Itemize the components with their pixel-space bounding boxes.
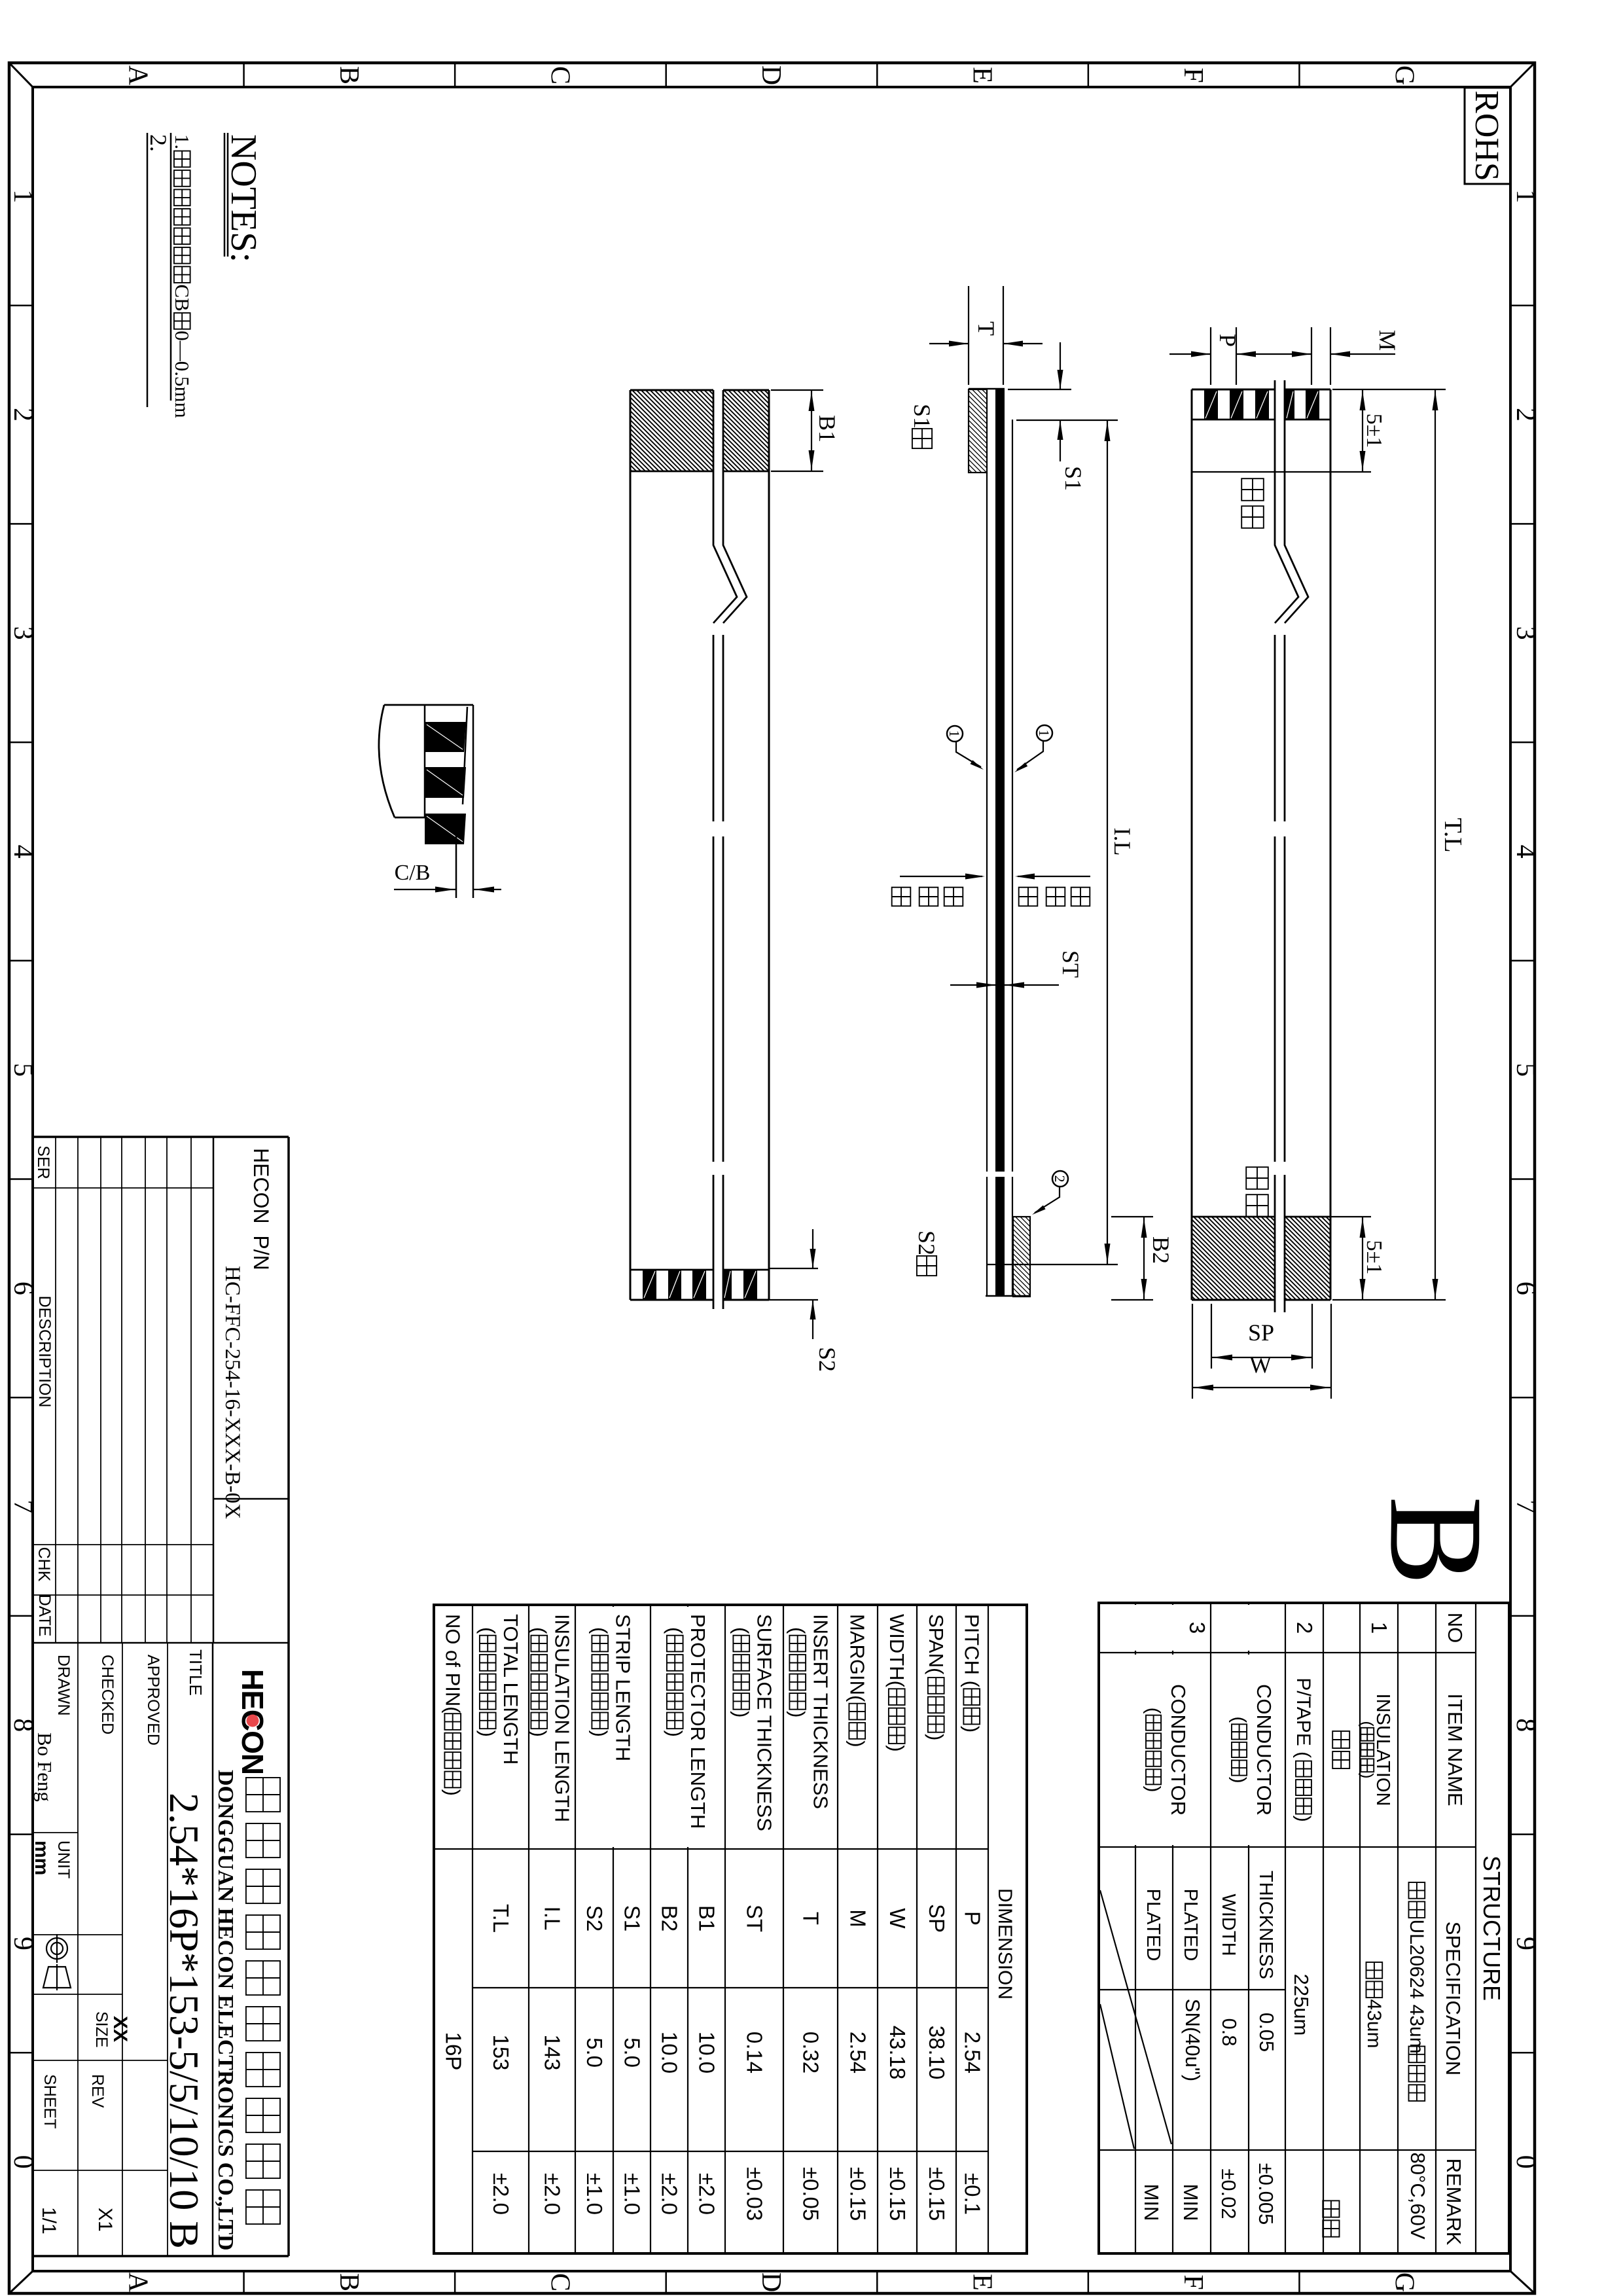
- svg-text:±0.005: ±0.005: [1255, 2163, 1277, 2225]
- svg-text:SP: SP: [1248, 1319, 1274, 1346]
- svg-text:B: B: [334, 66, 364, 84]
- svg-text:T: T: [973, 321, 999, 336]
- svg-text:G: G: [1389, 2272, 1419, 2292]
- svg-text:S2: S2: [814, 1347, 840, 1372]
- svg-text:(: (: [730, 1627, 753, 1634]
- svg-text:±0.05: ±0.05: [799, 2167, 823, 2221]
- svg-text:): ): [1143, 1786, 1164, 1793]
- svg-text:F: F: [1178, 2274, 1208, 2289]
- svg-text:TOTAL LENGTH: TOTAL LENGTH: [499, 1614, 522, 1765]
- svg-text:): ): [528, 1731, 551, 1737]
- svg-text:6: 6: [8, 1282, 38, 1295]
- svg-text:B: B: [334, 2273, 364, 2291]
- svg-text:S2: S2: [582, 1905, 607, 1931]
- svg-text:2: 2: [1293, 1622, 1317, 1634]
- svg-text:DIMENSION: DIMENSION: [994, 1888, 1016, 2000]
- svg-text:CB: CB: [171, 284, 194, 311]
- svg-text:M: M: [1374, 330, 1400, 351]
- svg-text:±0.02: ±0.02: [1217, 2168, 1240, 2219]
- svg-text:±0.15: ±0.15: [925, 2167, 949, 2221]
- svg-text:): ): [1228, 1777, 1249, 1784]
- svg-text:ST: ST: [1058, 950, 1084, 978]
- svg-text:43um: 43um: [1363, 1999, 1385, 2048]
- svg-text:(: (: [1358, 1721, 1376, 1727]
- svg-text:(: (: [476, 1627, 499, 1634]
- svg-text:ROHS: ROHS: [1468, 90, 1505, 181]
- svg-text:153: 153: [489, 2034, 513, 2070]
- svg-text:T.L: T.L: [489, 1904, 513, 1933]
- svg-text:2: 2: [8, 408, 38, 422]
- svg-text:SURFACE THICKNESS: SURFACE THICKNESS: [753, 1614, 776, 1831]
- svg-text:5.0: 5.0: [620, 2037, 645, 2068]
- svg-text:SER: SER: [34, 1145, 52, 1179]
- svg-text:INSERT THICKNESS: INSERT THICKNESS: [810, 1614, 832, 1809]
- svg-text:±0.1: ±0.1: [961, 2173, 985, 2215]
- svg-text:5±1: 5±1: [1362, 1240, 1386, 1275]
- svg-text:7: 7: [8, 1500, 38, 1514]
- svg-text:SPAN(: SPAN(: [925, 1614, 948, 1675]
- svg-text:SN(40u"): SN(40u"): [1181, 1999, 1204, 2081]
- svg-text:STRUCTURE: STRUCTURE: [1478, 1856, 1505, 2001]
- svg-text:REV: REV: [88, 2074, 107, 2108]
- svg-text:W: W: [1249, 1352, 1272, 1378]
- svg-text:XX: XX: [109, 2016, 131, 2042]
- svg-text:E: E: [967, 67, 997, 84]
- svg-text:(: (: [589, 1627, 612, 1634]
- svg-text:4: 4: [1510, 844, 1541, 858]
- svg-text:B1: B1: [695, 1905, 719, 1931]
- svg-text:): ): [1358, 1773, 1376, 1778]
- svg-text:4: 4: [8, 844, 38, 858]
- svg-text:0.32: 0.32: [799, 2032, 823, 2073]
- svg-text:0—0.5mm: 0—0.5mm: [171, 331, 194, 418]
- svg-text:1: 1: [1367, 1622, 1391, 1634]
- svg-text:E: E: [967, 2274, 997, 2291]
- svg-text:I.L: I.L: [1109, 828, 1135, 856]
- svg-text:Bo Feng: Bo Feng: [33, 1732, 56, 1802]
- svg-text:6: 6: [1510, 1282, 1541, 1295]
- svg-text:±2.0: ±2.0: [695, 2173, 719, 2215]
- svg-text:0: 0: [1510, 2155, 1541, 2169]
- svg-text:P: P: [1215, 334, 1241, 347]
- svg-text:): ): [730, 1711, 753, 1717]
- svg-text:0.14: 0.14: [743, 2032, 767, 2073]
- svg-text:7: 7: [1510, 1500, 1541, 1514]
- svg-text:3: 3: [1510, 626, 1541, 640]
- svg-text:): ): [885, 1745, 908, 1751]
- svg-text:SP: SP: [925, 1904, 949, 1933]
- svg-text:43.18: 43.18: [885, 2026, 910, 2080]
- svg-text:B2: B2: [1148, 1236, 1174, 1264]
- svg-text:PLATED: PLATED: [1180, 1889, 1201, 1962]
- svg-text:2: 2: [1052, 1175, 1068, 1183]
- svg-text:): ): [1293, 1816, 1314, 1822]
- svg-text:D: D: [756, 2272, 786, 2292]
- svg-text:8: 8: [8, 1718, 38, 1732]
- svg-text:ST: ST: [743, 1905, 767, 1932]
- svg-text:S1: S1: [1060, 466, 1086, 491]
- svg-text:B1: B1: [814, 415, 840, 442]
- svg-text:2: 2: [1510, 408, 1541, 422]
- svg-text:10.0: 10.0: [695, 2032, 719, 2073]
- svg-text:±2.0: ±2.0: [658, 2173, 682, 2215]
- svg-text:5.0: 5.0: [582, 2037, 607, 2068]
- svg-text:X1: X1: [94, 2208, 116, 2232]
- svg-text:PROTECTOR LENGTH: PROTECTOR LENGTH: [687, 1614, 709, 1829]
- svg-text:±1.0: ±1.0: [620, 2173, 645, 2215]
- svg-text:(: (: [1228, 1717, 1249, 1723]
- svg-text:INSULATION: INSULATION: [1372, 1694, 1393, 1806]
- svg-text:(: (: [787, 1627, 810, 1634]
- svg-text:16P: 16P: [442, 2032, 466, 2071]
- svg-text:WIDTH(: WIDTH(: [885, 1614, 908, 1688]
- svg-text:SIZE: SIZE: [92, 2011, 111, 2048]
- svg-text:UL20624 43um: UL20624 43um: [1406, 1919, 1427, 2053]
- svg-text:MIN: MIN: [1140, 2184, 1163, 2221]
- svg-text:2.54: 2.54: [846, 2032, 870, 2073]
- svg-text:THICKNESS: THICKNESS: [1255, 1871, 1276, 1979]
- svg-text:3: 3: [1185, 1622, 1209, 1634]
- svg-text:NO: NO: [1444, 1613, 1467, 1643]
- svg-text:T: T: [799, 1912, 823, 1925]
- svg-text:): ): [846, 1740, 869, 1747]
- svg-text:): ): [589, 1731, 612, 1737]
- svg-text:SPECIFICATION: SPECIFICATION: [1442, 1922, 1465, 2075]
- svg-text:DRAWN: DRAWN: [54, 1655, 73, 1716]
- svg-text:143: 143: [541, 2034, 565, 2070]
- svg-text:CHECKED: CHECKED: [98, 1655, 116, 1734]
- svg-text:APPROVED: APPROVED: [144, 1655, 162, 1746]
- svg-text:PITCH (: PITCH (: [961, 1614, 984, 1688]
- svg-text:1: 1: [1036, 730, 1052, 737]
- svg-text:80°C,60V: 80°C,60V: [1406, 2152, 1429, 2239]
- svg-text:DATE: DATE: [35, 1594, 54, 1637]
- svg-text:1: 1: [8, 189, 38, 203]
- svg-text:1/1: 1/1: [38, 2207, 60, 2234]
- svg-text:TITLE: TITLE: [186, 1649, 205, 1696]
- svg-text:3: 3: [8, 626, 38, 640]
- svg-text:9: 9: [8, 1937, 38, 1950]
- svg-text:M: M: [846, 1909, 870, 1928]
- svg-text:S1: S1: [620, 1905, 645, 1931]
- svg-text:10.0: 10.0: [658, 2032, 682, 2073]
- svg-text:B: B: [1362, 1496, 1510, 1586]
- svg-text:I.L: I.L: [541, 1907, 565, 1931]
- svg-text:): ): [476, 1731, 499, 1737]
- svg-text:HC-FFC-254-16-XXX-B-0X: HC-FFC-254-16-XXX-B-0X: [221, 1266, 244, 1519]
- svg-text:(: (: [1143, 1708, 1164, 1714]
- svg-text:5±1: 5±1: [1362, 414, 1386, 448]
- svg-text:mm: mm: [31, 1840, 52, 1875]
- svg-text:WIDTH: WIDTH: [1218, 1893, 1239, 1956]
- svg-text:±2.0: ±2.0: [541, 2173, 565, 2215]
- svg-text:NOTES:: NOTES:: [223, 134, 264, 262]
- svg-text:0: 0: [8, 2155, 38, 2169]
- svg-text:±2.0: ±2.0: [489, 2173, 513, 2215]
- svg-text:C/B: C/B: [395, 861, 431, 885]
- svg-text:SHEET: SHEET: [41, 2074, 59, 2128]
- svg-text:2.54: 2.54: [961, 2032, 985, 2073]
- svg-text:(: (: [664, 1627, 687, 1634]
- svg-text:0.8: 0.8: [1218, 2018, 1241, 2046]
- svg-text:DESCRIPTION: DESCRIPTION: [35, 1296, 54, 1408]
- svg-text:): ): [442, 1789, 465, 1796]
- svg-text:INSULATION LENGTH: INSULATION LENGTH: [551, 1614, 574, 1822]
- svg-text:1: 1: [946, 730, 963, 738]
- svg-text:F: F: [1178, 67, 1208, 82]
- svg-text:W: W: [885, 1908, 910, 1929]
- svg-text:5: 5: [8, 1063, 38, 1077]
- svg-text:1: 1: [1510, 189, 1541, 203]
- svg-text:1.: 1.: [171, 134, 194, 149]
- svg-text:C: C: [544, 2273, 575, 2291]
- svg-text:CHK: CHK: [35, 1547, 53, 1582]
- svg-text:5: 5: [1510, 1063, 1541, 1077]
- svg-text:P: P: [961, 1911, 985, 1926]
- svg-text:): ): [787, 1711, 810, 1717]
- svg-text:±1.0: ±1.0: [582, 2173, 607, 2215]
- svg-text:±0.15: ±0.15: [885, 2167, 910, 2221]
- svg-text:PLATED: PLATED: [1143, 1889, 1164, 1962]
- svg-text:ITEM NAME: ITEM NAME: [1444, 1693, 1467, 1806]
- svg-text:225um: 225um: [1290, 1974, 1313, 2036]
- svg-text:A: A: [122, 2272, 152, 2293]
- svg-text:(: (: [528, 1627, 551, 1634]
- svg-text:): ): [925, 1734, 948, 1740]
- svg-text:REMARK: REMARK: [1442, 2159, 1465, 2246]
- svg-text:B2: B2: [658, 1905, 682, 1931]
- svg-text:D: D: [756, 65, 786, 85]
- svg-text:9: 9: [1510, 1937, 1541, 1950]
- svg-text:MIN: MIN: [1179, 2184, 1202, 2221]
- svg-text:MARGIN(: MARGIN(: [846, 1614, 869, 1702]
- svg-text:CONDUCTOR: CONDUCTOR: [1253, 1684, 1275, 1816]
- svg-text:A: A: [122, 65, 152, 86]
- svg-text:HECON P/N: HECON P/N: [249, 1148, 273, 1270]
- svg-text:8: 8: [1510, 1718, 1541, 1732]
- svg-text:CONDUCTOR: CONDUCTOR: [1167, 1684, 1190, 1816]
- svg-text:0.05: 0.05: [1255, 2013, 1278, 2052]
- svg-text:2.: 2.: [145, 134, 171, 152]
- svg-text:): ): [961, 1726, 984, 1732]
- svg-text:S1: S1: [909, 404, 935, 429]
- svg-text:G: G: [1389, 65, 1419, 85]
- svg-text:): ): [664, 1731, 687, 1737]
- svg-text:STRIP LENGTH: STRIP LENGTH: [612, 1614, 635, 1761]
- svg-text:S2: S2: [914, 1230, 940, 1255]
- svg-text:±0.15: ±0.15: [846, 2167, 870, 2221]
- svg-text:DONGGUAN HECON ELECTRONICS CO.: DONGGUAN HECON ELECTRONICS CO.,LTD: [213, 1770, 238, 2251]
- svg-text:NO of PIN(: NO of PIN(: [442, 1614, 465, 1713]
- svg-text:T.L: T.L: [1439, 817, 1467, 852]
- svg-text:UNIT: UNIT: [54, 1840, 73, 1878]
- svg-text:P/TAPE (: P/TAPE (: [1293, 1677, 1314, 1758]
- svg-text:C: C: [544, 66, 575, 84]
- svg-text:38.10: 38.10: [925, 2026, 949, 2080]
- svg-text:±0.03: ±0.03: [743, 2167, 767, 2221]
